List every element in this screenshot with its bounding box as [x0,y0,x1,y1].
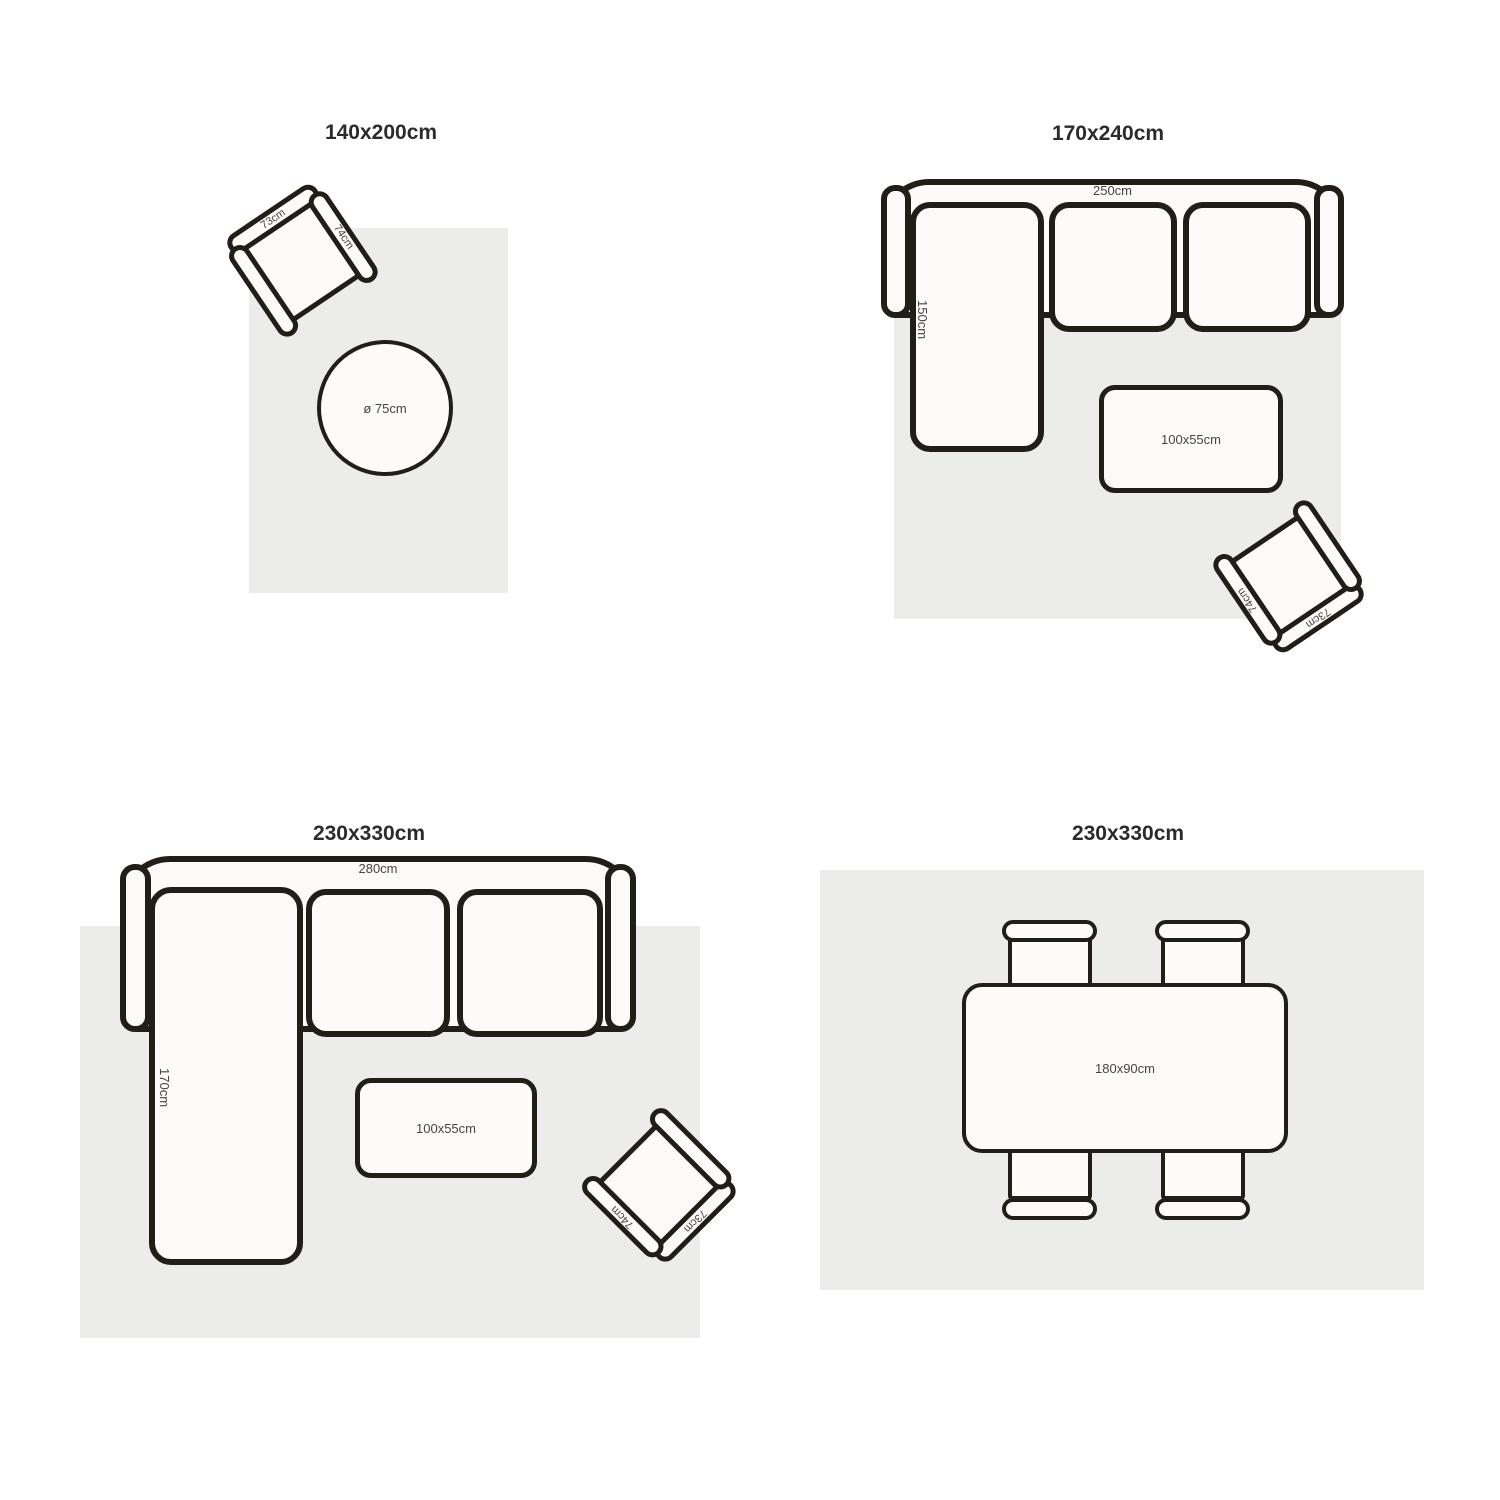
dining-chair-backrest [1155,1198,1250,1220]
panel2-chaise-depth-label: 150cm [916,300,929,339]
panel2-sofa-cushion [1049,202,1177,332]
panel2-sofa-right-arm [1314,185,1344,318]
panel1-round-table: ø 75cm [317,340,453,476]
panel4-title: 230x330cm [1018,822,1238,846]
dining-chair-backrest [1155,920,1250,942]
rug-size-guide: 140x200cm ø 75cm 73cm 74cm 170x240cm 250… [0,0,1500,1500]
round-table-diameter-label: ø 75cm [363,401,406,416]
panel3-sofa-left-arm [120,864,151,1032]
panel2-sofa-cushion [1183,202,1311,332]
panel2-sofa-chaise [910,202,1044,452]
panel2-sofa-left-arm [881,185,911,318]
panel1-title: 140x200cm [271,121,491,145]
panel3-sofa-chaise [149,887,303,1265]
dining-table-size-label: 180x90cm [1095,1061,1155,1076]
panel2-coffee-table: 100x55cm [1099,385,1283,493]
panel3-sofa-cushion [457,889,603,1037]
dining-chair-backrest [1002,1198,1097,1220]
panel4-dining-table: 180x90cm [962,983,1288,1153]
panel3-sofa-right-arm [605,864,636,1032]
coffee-table-size-label: 100x55cm [1161,432,1221,447]
panel2-title: 170x240cm [998,122,1218,146]
panel2-sofa-width-label: 250cm [881,184,1344,197]
panel3-sofa-cushion [306,889,450,1037]
panel3-title: 230x330cm [259,822,479,846]
panel3-chaise-depth-label: 170cm [158,1068,171,1107]
panel3-sofa-width-label: 280cm [120,862,636,875]
panel3-coffee-table: 100x55cm [355,1078,537,1178]
coffee-table-size-label: 100x55cm [416,1121,476,1136]
dining-chair-backrest [1002,920,1097,942]
